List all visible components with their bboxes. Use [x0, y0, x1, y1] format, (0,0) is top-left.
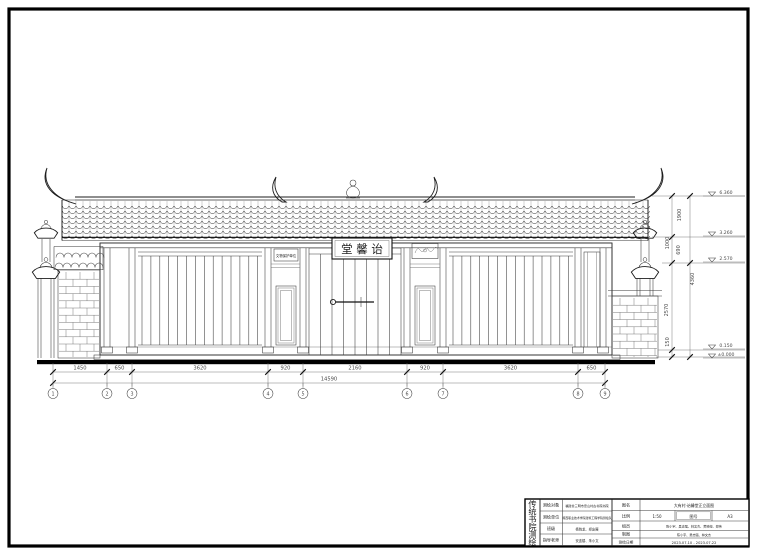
axis-number: 9 — [603, 391, 606, 397]
org-vertical-title: 传统书院测绘 — [528, 499, 536, 547]
axis-bubbles: 123456789 — [48, 383, 610, 399]
elevation-label: 0.150 — [719, 343, 732, 349]
building-elevation: 文物保护单位 堂 馨 诒 — [32, 168, 663, 364]
elevation-drawing-canvas: 文物保护单位 堂 馨 诒 — [0, 0, 757, 555]
dim-label: 1450 — [73, 366, 86, 372]
dim-label: 1900 — [677, 209, 683, 222]
base-step — [94, 355, 620, 360]
row-value: 杨晓龙、郑友展 — [575, 526, 599, 531]
row-label: 测绘单位 — [543, 514, 559, 520]
axis-number: 6 — [405, 391, 408, 397]
axis-number: 2 — [105, 391, 108, 397]
scale-value: 1:50 — [653, 514, 662, 519]
row-label: 指导老师 — [543, 537, 559, 543]
elevation-label: ±0.000 — [717, 352, 734, 358]
plaque-text: 堂 馨 诒 — [341, 242, 383, 256]
dim-label: 920 — [281, 366, 291, 372]
dim-label: 690 — [676, 245, 682, 255]
roof-horn-mid-right — [424, 177, 437, 202]
axis-number: 3 — [130, 391, 133, 397]
dim-total-label: 14590 — [321, 377, 338, 383]
left-pier: 文物保护单位 — [271, 249, 300, 345]
bottom-dimensions: 145065036209202160920362065014590 — [50, 363, 608, 387]
drawing-name: 大有村·诒馨堂正立面图 — [674, 503, 714, 508]
column-pedestal — [402, 347, 413, 353]
sheet-border — [9, 9, 748, 546]
column-pedestal — [298, 347, 309, 353]
elevation-label: 2.570 — [719, 256, 732, 262]
ground-line — [37, 360, 655, 364]
heritage-sign-text: 文物保护单位 — [276, 253, 297, 258]
date-label: 测绘日期 — [619, 540, 634, 545]
dim-label: 3620 — [504, 366, 517, 372]
level-symbol — [709, 345, 716, 349]
level-symbol — [709, 192, 716, 196]
axis-number: 4 — [266, 391, 269, 397]
column-pedestal — [598, 347, 609, 353]
dim-label: 3620 — [193, 366, 206, 372]
axis-number: 5 — [301, 391, 304, 397]
right-end-panel — [584, 252, 600, 347]
sheet-label: 图号 — [690, 513, 698, 519]
row-value: 福建省三明市忠山村古书院书院 — [565, 503, 608, 508]
team-label: 组员 — [622, 522, 630, 528]
dim-label: 1000 — [665, 237, 671, 250]
scale-label: 比例 — [622, 513, 630, 519]
dim-label: 920 — [420, 366, 430, 372]
team-value: 陈小宇、吴志强、林文杰、黄晓婷、郑伟 — [666, 524, 722, 529]
roof-horn-right-end — [632, 168, 663, 204]
main-door — [309, 248, 401, 355]
date-value: 2023.07.10 - 2023.07.22 — [672, 541, 717, 545]
level-symbol — [709, 354, 716, 358]
sheet-value: A3 — [727, 514, 733, 519]
row-value: 安连楼、朱小文 — [575, 538, 599, 543]
dim-label: 150 — [665, 337, 671, 347]
title-block: 传统书院测绘 测绘对象 福建省三明市忠山村古书院书院 测绘单位 闽西职业技术学院… — [525, 499, 749, 547]
left-wall-tile-coping — [54, 247, 104, 271]
right-dimensions: 1900100069043602570150 — [652, 193, 745, 360]
roof-horn-left-end — [45, 168, 76, 204]
row-label: 班级 — [547, 525, 555, 531]
column-pedestal — [263, 347, 274, 353]
column-pedestal — [127, 347, 138, 353]
axis-number: 7 — [441, 391, 444, 397]
row-value: 闽西职业技术学院建筑工程学院测绘队 — [562, 515, 611, 520]
door-planks — [321, 254, 390, 355]
dim-label: 4360 — [690, 273, 696, 286]
elevation-markers: 6.3603.2602.5700.150±0.000 — [703, 190, 745, 358]
dim-label: 650 — [587, 366, 597, 372]
draft-label: 制图 — [622, 531, 630, 537]
roof-tile-pattern — [62, 201, 650, 239]
draft-value: 陈小宇、吴志强、林文杰 — [677, 532, 711, 537]
right-pier — [410, 244, 440, 346]
axis-number: 8 — [576, 391, 579, 397]
elevation-label: 6.360 — [719, 190, 732, 196]
elevation-label: 3.260 — [719, 230, 732, 236]
roof-horn-mid-left — [273, 177, 286, 202]
column-pedestal — [102, 347, 113, 353]
row-label: 测绘对象 — [543, 502, 559, 508]
left-brick-wall — [54, 247, 104, 359]
ridge-gourd-finial — [346, 180, 360, 198]
level-symbol — [709, 232, 716, 236]
dim-label: 650 — [115, 366, 125, 372]
door-handle — [330, 297, 374, 307]
right-brick-wall — [608, 291, 662, 359]
facade-wall — [94, 243, 620, 360]
axis-number: 1 — [51, 391, 54, 397]
dim-label: 2160 — [348, 366, 361, 372]
lattice-windows — [138, 252, 573, 345]
name-plaque: 堂 馨 诒 — [332, 238, 392, 259]
cad-sheet: 文物保护单位 堂 馨 诒 — [0, 0, 757, 555]
left-gate-pillar — [32, 220, 59, 358]
main-roof — [45, 168, 663, 241]
dim-label: 2570 — [664, 304, 670, 317]
column-pedestal — [438, 347, 449, 353]
column-pedestal — [573, 347, 584, 353]
drawing-name-label: 图名 — [622, 502, 630, 508]
level-symbol — [709, 258, 716, 262]
